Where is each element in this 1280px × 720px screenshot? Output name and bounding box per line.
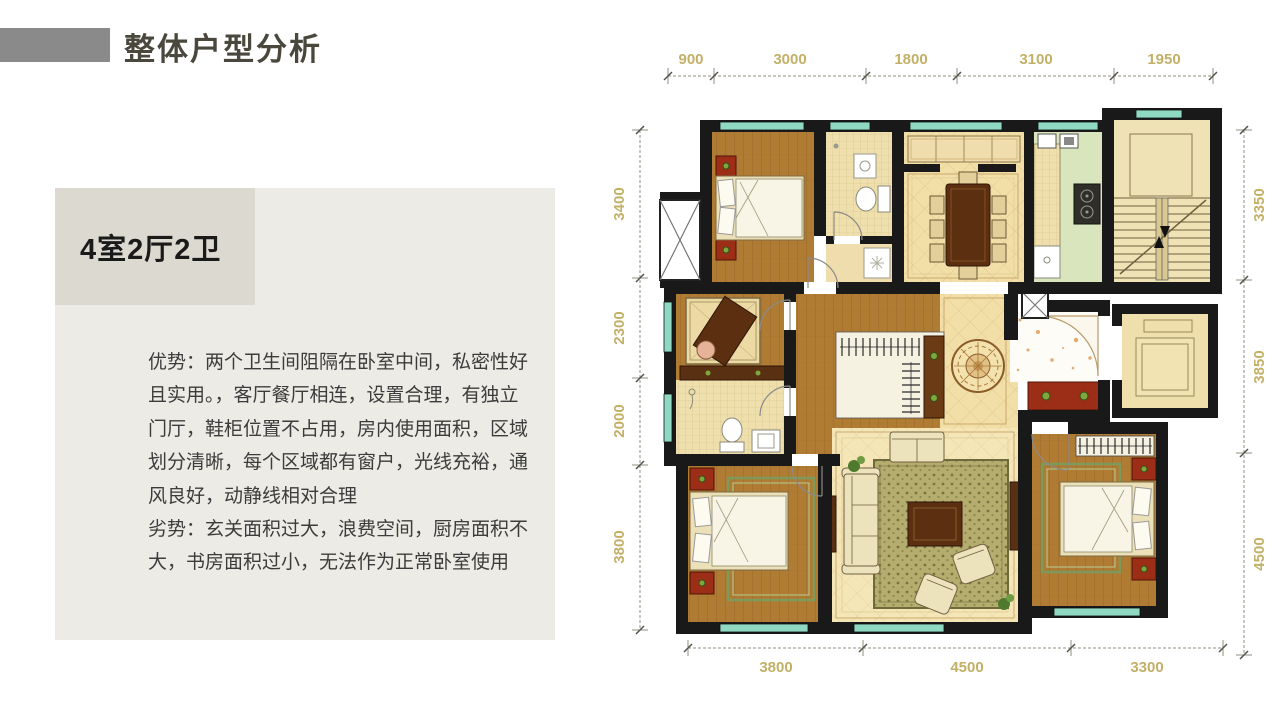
dim-bottom-0: 3800 [759,659,792,676]
dining-chair [959,172,977,185]
dim-top-4: 1950 [1147,51,1180,68]
kitchen-counter [1034,144,1060,246]
dining-chair [959,266,977,279]
dim-top: 900 3000 1800 3100 1950 [664,51,1217,84]
walkin-closet [836,332,944,418]
window [1038,122,1098,130]
dim-bottom-1: 4500 [950,659,983,676]
layout-headline: 4室2厅2卫 [55,188,255,305]
shaft [1022,292,1048,318]
window [910,122,1002,130]
washbasin [854,154,876,178]
dim-left-0: 3400 [611,187,628,220]
wardrobe [924,336,944,418]
dim-bottom: 3800 4500 3300 [684,640,1227,676]
floor-medallion [952,340,1004,392]
dining-chair [930,244,944,262]
desk-chair [697,341,715,359]
analysis-line: 大，书房面积过小，无法作为正常卧室使用 [148,546,552,579]
shoe-cabinet [1028,382,1104,410]
window [720,122,804,130]
floorplan: 900 3000 1800 3100 1950 3400 2300 2000 3… [608,50,1280,710]
study-furniture [686,296,760,365]
dining-chair [992,244,1006,262]
page-title: 整体户型分析 [124,24,322,69]
dining-chair [992,220,1006,238]
dim-top-1: 3000 [773,51,806,68]
dim-top-0: 900 [678,51,703,68]
toilet-icon [856,187,876,211]
dim-left-3: 3800 [611,530,628,563]
dim-top-3: 3100 [1019,51,1052,68]
laundry-cabinet [864,248,890,278]
floorplan-svg: 900 3000 1800 3100 1950 3400 2300 2000 3… [608,50,1280,710]
window [830,122,870,130]
kitchen-sink [1034,246,1060,278]
dim-right-1: 3850 [1251,350,1268,383]
dim-top-2: 1800 [894,51,927,68]
analysis-line: 风良好，动静线相对合理 [148,480,552,513]
appliance [1038,134,1056,148]
window [1136,110,1182,118]
slide: 整体户型分析 4室2厅2卫 优势：两个卫生间阻隔在卧室中间，私密性好 且实用。，… [0,0,1280,720]
analysis-line: 门厅，鞋柜位置不占用，房内使用面积，区域 [148,413,552,446]
dining-table [946,184,990,266]
dim-left: 3400 2300 2000 3800 [611,126,648,634]
toilet-tank [878,186,890,212]
dining-chair [930,220,944,238]
analysis-line: 优势：两个卫生间阻隔在卧室中间，私密性好 [148,346,552,379]
sink [752,430,780,452]
window [1054,608,1140,616]
toilet-icon [722,418,742,442]
analysis-line: 且实用。，客厅餐厅相连，设置合理，有独立 [148,379,552,412]
analysis-line: 劣势：玄关面积过大，浪费空间，厨房面积不 [148,513,552,546]
dim-right-0: 3350 [1251,188,1268,221]
dining-chair [992,196,1006,214]
dim-right-2: 4500 [1251,537,1268,570]
window [664,394,672,442]
dining-chair [930,196,944,214]
dim-bottom-2: 3300 [1130,659,1163,676]
dim-left-2: 2000 [611,404,628,437]
analysis-text: 优势：两个卫生间阻隔在卧室中间，私密性好 且实用。，客厅餐厅相连，设置合理，有独… [148,346,552,580]
dim-left-1: 2300 [611,311,628,344]
title-accent-bar [0,28,110,62]
elevator-shaft [660,200,700,280]
analysis-line: 划分清晰，每个区域都有窗户，光线充裕，通 [148,446,552,479]
sofa [844,474,878,566]
window [854,624,944,632]
dim-right: 3350 3850 4500 [1236,126,1268,659]
window [664,302,672,352]
window [720,624,808,632]
dresser [680,366,786,380]
coffee-table [908,502,962,546]
